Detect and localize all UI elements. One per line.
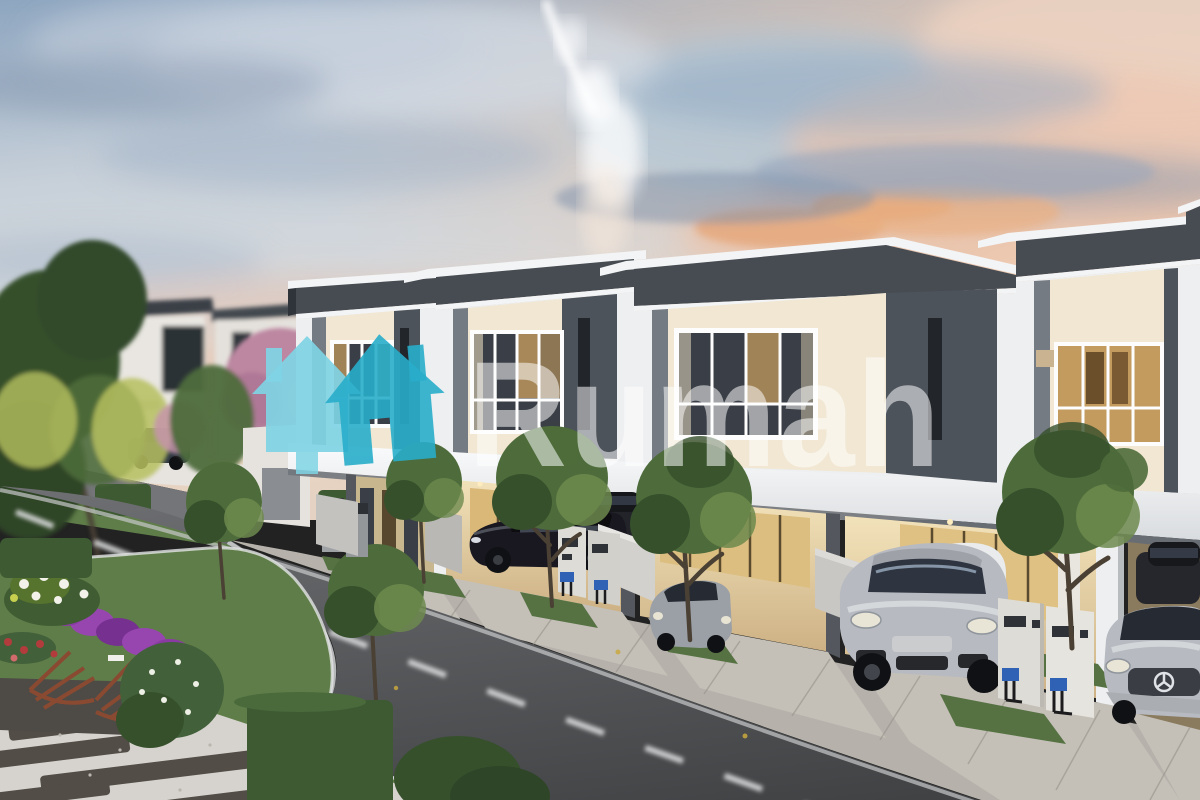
headlight <box>967 618 997 634</box>
chimney <box>407 344 426 381</box>
tree-canopy <box>37 240 147 360</box>
gate <box>262 468 300 520</box>
blue-valve <box>1002 668 1019 681</box>
facade-panel <box>453 308 468 453</box>
contrail-puff <box>556 18 584 62</box>
headlight <box>1106 659 1130 673</box>
watermark-text: Rumah <box>468 330 942 498</box>
meter-slot <box>1004 616 1026 627</box>
car-wheel <box>967 659 1001 693</box>
meter-boxes-b <box>998 598 1094 718</box>
headlight <box>851 612 881 628</box>
hedge-top <box>234 692 366 712</box>
headlight <box>721 616 731 624</box>
render-image: Rumah <box>0 0 1200 800</box>
suv-wheel <box>169 456 183 470</box>
yellow-accent <box>10 594 18 602</box>
meter-slot <box>592 544 608 553</box>
blue-valve <box>560 572 574 582</box>
headlight <box>653 612 663 620</box>
silver-mercedes-sedan <box>1104 606 1200 724</box>
car-wheel <box>707 635 725 653</box>
meter-box-side <box>1040 603 1044 708</box>
car-wheel <box>1112 700 1136 724</box>
cloud-gray <box>630 52 1110 132</box>
scene-canvas: Rumah <box>0 0 1200 800</box>
book-on-chair <box>108 655 124 661</box>
chimney <box>266 348 282 382</box>
facade-panel-dark <box>1164 268 1178 493</box>
front-intake <box>896 656 948 670</box>
tree-canopy <box>170 365 254 475</box>
contrail-puff <box>581 170 629 260</box>
roof-side <box>288 288 296 316</box>
garden-box-hedge <box>0 538 92 578</box>
wheel-hub <box>864 664 880 680</box>
large-box-hedge <box>247 700 393 800</box>
headlight <box>471 537 481 543</box>
window-interior-silhouette <box>1086 352 1104 404</box>
meter-slot <box>1080 630 1088 638</box>
downlight <box>947 519 953 525</box>
window-interior-silhouette <box>1112 352 1128 404</box>
car-wheel <box>657 633 675 651</box>
meter-slot <box>1032 620 1040 628</box>
roof-parapet <box>1186 206 1200 258</box>
cloud-gray <box>755 144 1155 200</box>
wheel-hub <box>493 555 503 565</box>
cloud <box>100 119 560 191</box>
car-glass <box>1150 548 1198 558</box>
silver-porsche-suv <box>840 543 1008 693</box>
license-plate <box>892 636 952 652</box>
meter-slot <box>562 554 572 560</box>
blue-valve <box>1050 678 1067 691</box>
blue-valve <box>594 580 608 590</box>
windshield <box>868 559 986 594</box>
logo-step <box>296 452 318 474</box>
meter-boxes-a <box>558 524 620 606</box>
